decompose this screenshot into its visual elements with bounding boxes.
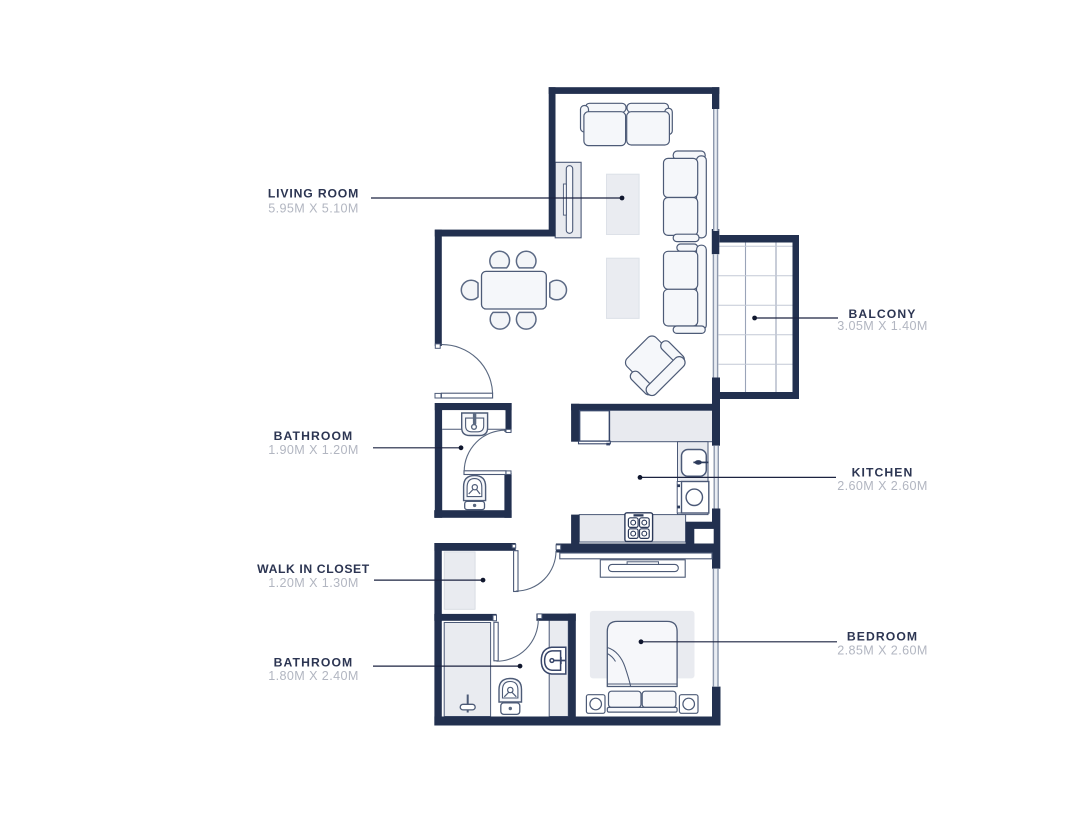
svg-text:1.90M X 1.20M: 1.90M X 1.20M [268, 443, 359, 457]
svg-text:2.85M X 2.60M: 2.85M X 2.60M [837, 644, 928, 658]
svg-text:5.95M X 5.10M: 5.95M X 5.10M [268, 201, 359, 215]
svg-text:BEDROOM: BEDROOM [847, 629, 918, 643]
svg-text:LIVING ROOM: LIVING ROOM [268, 187, 359, 201]
svg-text:2.60M X 2.60M: 2.60M X 2.60M [837, 479, 928, 493]
svg-text:KITCHEN: KITCHEN [852, 466, 914, 480]
svg-text:WALK IN CLOSET: WALK IN CLOSET [257, 562, 370, 576]
svg-text:BATHROOM: BATHROOM [274, 656, 354, 670]
svg-text:BATHROOM: BATHROOM [274, 429, 354, 443]
svg-text:1.20M X 1.30M: 1.20M X 1.30M [268, 576, 359, 590]
svg-text:1.80M X 2.40M: 1.80M X 2.40M [268, 669, 359, 683]
svg-text:3.05M X 1.40M: 3.05M X 1.40M [837, 319, 928, 333]
